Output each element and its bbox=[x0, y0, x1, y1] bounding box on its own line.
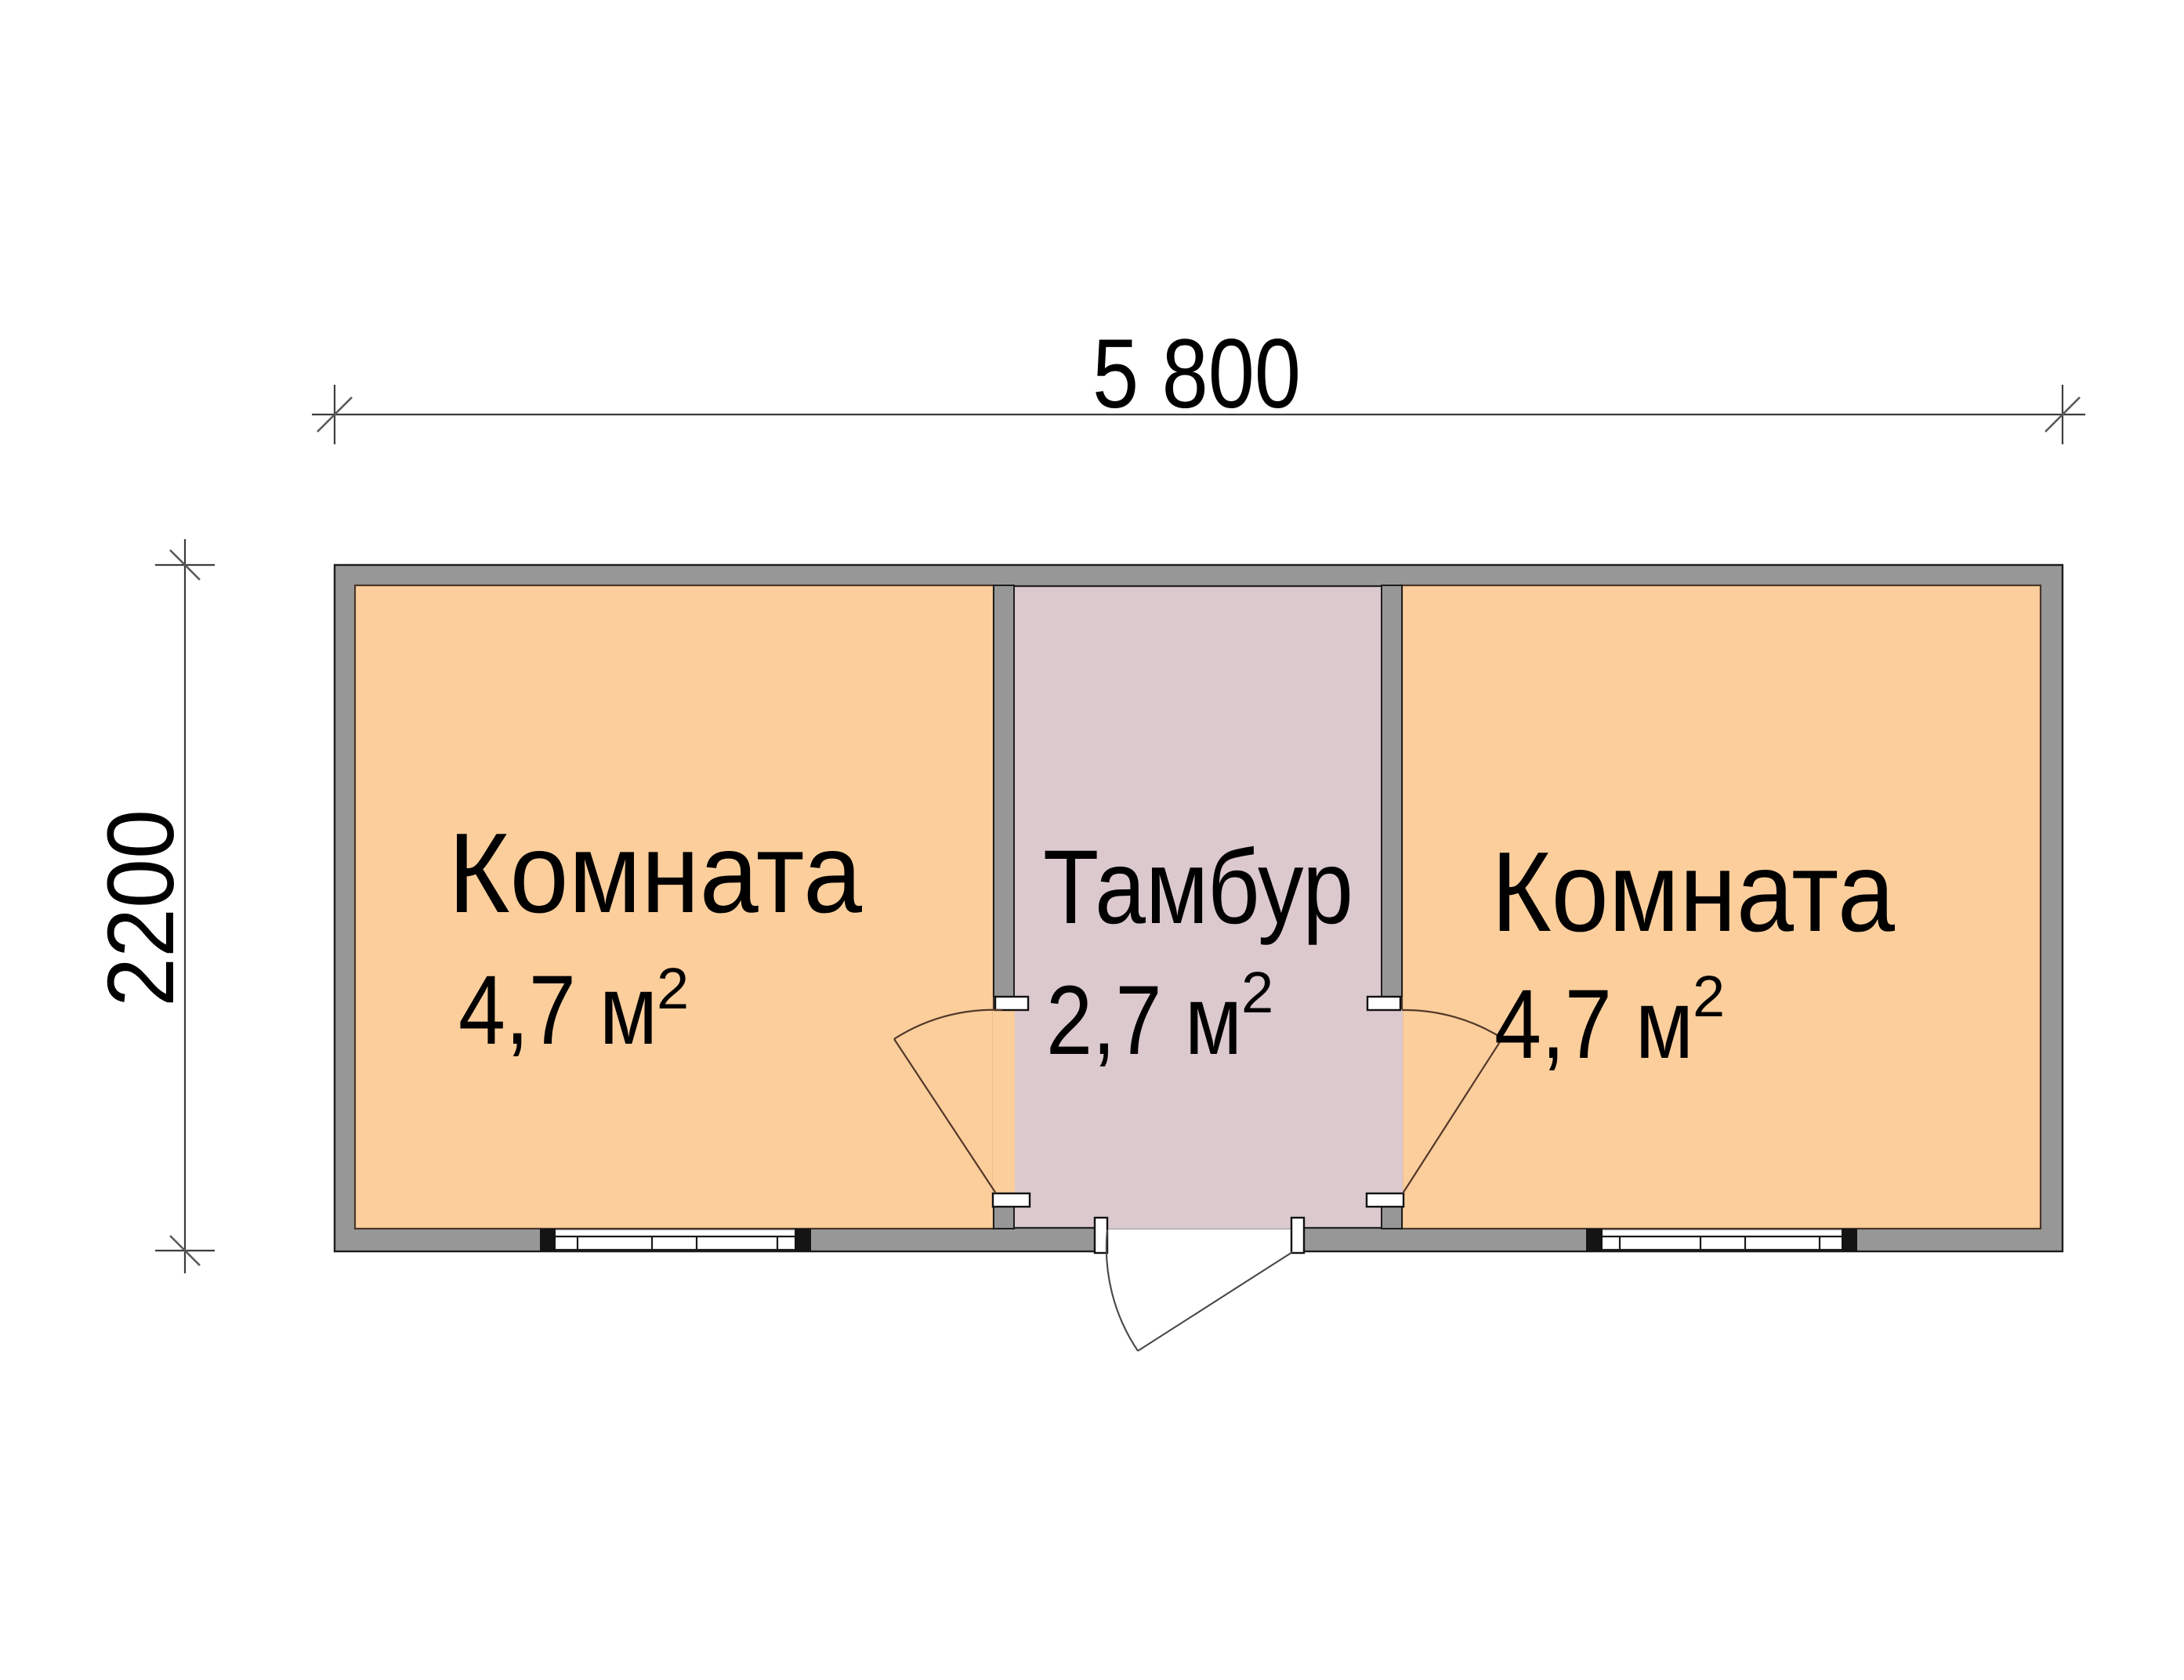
svg-text:Комната: Комната bbox=[1491, 828, 1895, 955]
svg-text:4,7 м: 4,7 м bbox=[1494, 970, 1693, 1079]
svg-text:2,7 м: 2,7 м bbox=[1046, 966, 1242, 1075]
svg-text:Комната: Комната bbox=[448, 809, 862, 936]
svg-text:2: 2 bbox=[1241, 960, 1273, 1025]
svg-text:4,7 м: 4,7 м bbox=[458, 956, 657, 1065]
svg-text:2: 2 bbox=[657, 956, 689, 1021]
svg-text:2200: 2200 bbox=[87, 809, 194, 1007]
svg-text:2: 2 bbox=[1693, 964, 1725, 1029]
svg-text:Тамбур: Тамбур bbox=[1043, 829, 1353, 946]
svg-text:5 800: 5 800 bbox=[1092, 320, 1301, 429]
